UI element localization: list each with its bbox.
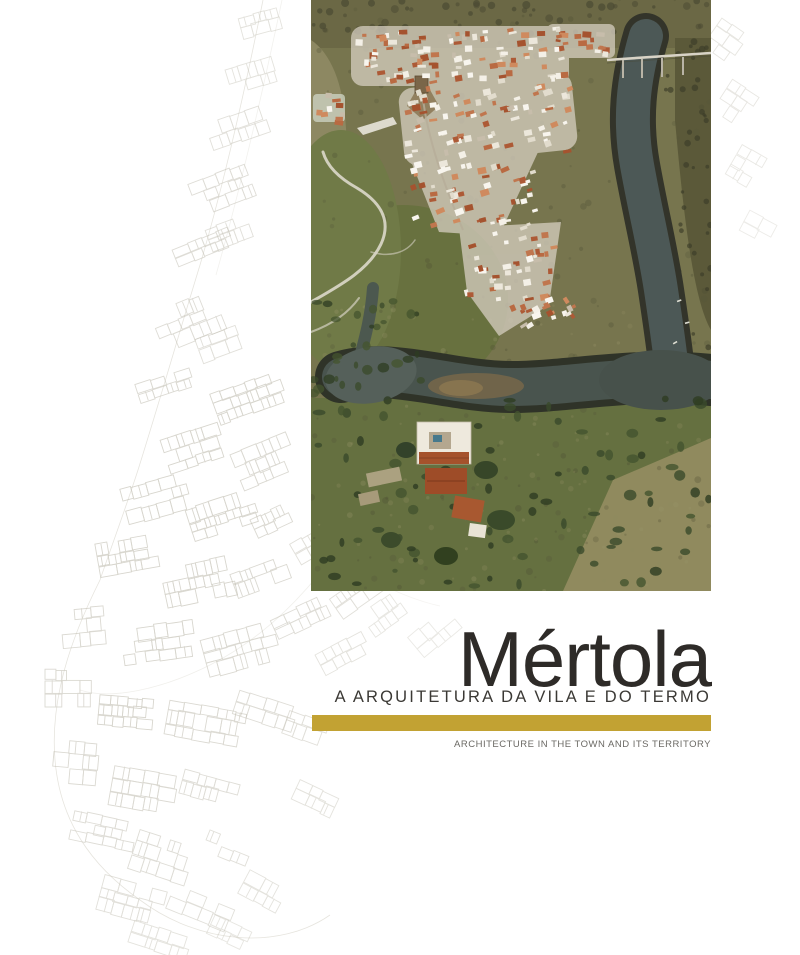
aerial-photo [311, 0, 711, 591]
book-cover: Mértola A ARQUITETURA DA VILA E DO TERMO… [0, 0, 800, 955]
